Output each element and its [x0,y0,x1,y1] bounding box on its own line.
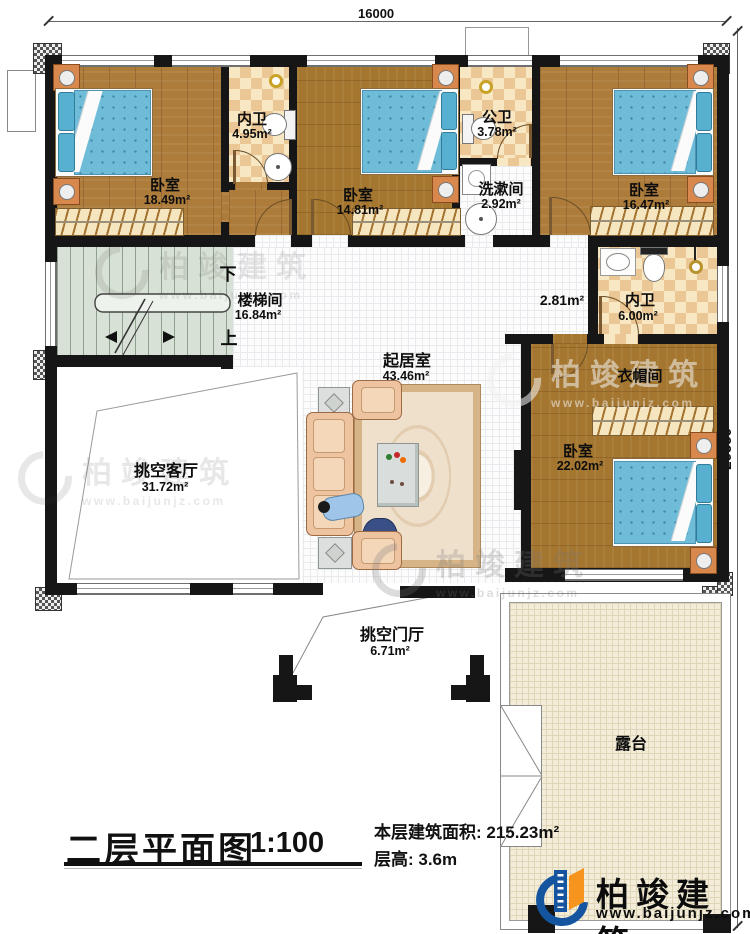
door-opening [497,158,531,166]
top-dimension-line [48,21,726,22]
person-head [318,501,330,513]
foyer-column-left [273,675,297,702]
nightstand [432,64,459,91]
drawing-scale: 1:100 [250,827,324,860]
void-living-label: 挑空客厅 [134,464,198,481]
floor-area-info: 本层建筑面积: 215.23m² [374,818,559,843]
top-dimension-label: 16000 [355,6,397,21]
right-dimension-line [737,28,738,928]
pillow [696,133,712,172]
ac-platform [7,70,36,132]
tv-unit [514,450,521,510]
pillow [696,92,712,131]
shower-head [689,260,703,274]
door-opening [550,235,588,247]
bedroom4-label: 卧室 [563,444,593,460]
door-opening [221,192,229,222]
stairs-up-label: 上 [221,330,238,348]
foyer-column-right [451,685,466,700]
window [172,55,250,67]
bath2-area: 6.00m² [618,310,658,323]
pillow [441,132,457,170]
foyer-column-left [279,655,293,677]
side-table [318,537,352,569]
door-opening [465,235,493,247]
pillow [58,92,75,131]
door-opening [604,334,638,344]
living-area: 43.46m² [383,370,430,383]
void-foyer-area: 6.71m² [370,645,410,658]
bedroom4-area: 22.02m² [557,460,604,473]
chimney-shaft [465,27,529,57]
floor-plan-canvas: 16000 20550 [0,0,750,934]
light-fixture [269,74,283,88]
washroom-label: 洗漱间 [478,182,523,198]
wall-bath2-left [588,247,598,344]
bath1-label: 内卫 [237,112,267,128]
toilet [643,254,665,282]
pillow [58,133,75,172]
nightstand [690,547,717,574]
nightstand [432,176,459,203]
nightstand [687,64,714,91]
bath1-door-leaf [233,150,236,184]
pillow [441,92,457,130]
bedroom2-label: 卧室 [343,188,373,204]
nightstand [53,178,80,205]
floor-height-info: 层高: 3.6m [374,845,457,870]
foyer-column-right [470,655,484,677]
vanity-counter [600,248,636,276]
bedroom3-door-leaf [549,197,552,235]
door-opening [553,334,587,344]
stairs-graphic [57,247,233,355]
door-opening [312,235,348,247]
foyer-column-right [466,675,490,702]
armchair [352,380,402,420]
void-living-area: 31.72m² [142,481,189,494]
window [307,55,435,67]
void-foyer-label: 挑空门厅 [360,628,424,645]
corridor-area: 2.81m² [540,293,584,308]
bedroom3-area: 16.47m² [623,199,670,212]
cloakroom-label: 衣帽间 [617,369,662,385]
stairs-down-label: 下 [220,266,237,284]
window [77,583,190,595]
bedroom2-area: 14.81m² [337,204,384,217]
sink [264,153,292,181]
wall-washblock-right [532,67,540,247]
terrace-label: 露台 [615,737,647,754]
pillow [696,504,712,543]
bath1-area: 4.95m² [232,128,272,141]
wall-bedroom4-left [521,334,531,570]
public-bath-label: 公卫 [482,110,512,126]
bedroom1-label: 卧室 [150,178,180,194]
wall-bottom-center [400,586,475,598]
bedroom3-label: 卧室 [629,183,659,199]
nightstand [687,176,714,203]
stairwell-area: 16.84m² [235,309,282,322]
brand-url: www.baijunjz.com [596,905,750,922]
public-bath-door-leaf [529,124,532,158]
title-underline [64,862,362,866]
armchair [352,531,402,570]
nightstand [690,432,717,459]
wardrobe [55,208,184,236]
washroom-area: 2.92m² [481,198,521,211]
bath2-door-leaf [599,296,602,334]
brand-logo-icon [536,864,588,928]
bath2-label: 内卫 [625,293,655,309]
door-opening [255,235,291,247]
wall-stub [221,355,233,369]
stairwell-label: 楼梯间 [237,293,282,309]
brand-name: 柏竣建筑 [596,868,750,934]
window [468,55,532,67]
pillow [696,464,712,503]
bedroom4-door-leaf [551,344,554,374]
light-fixture [479,80,493,94]
bedroom1-door-leaf [289,199,292,235]
coffee-table [377,443,419,507]
bedroom1-area: 18.49m² [144,194,191,207]
title-underline-2 [64,868,362,869]
wall-row1-bottom [45,235,729,247]
window [233,583,273,595]
bedroom2-door-leaf [311,199,314,235]
foyer-column-left [297,685,312,700]
window [717,266,729,322]
nightstand [53,64,80,91]
window [565,569,683,581]
window [45,262,57,346]
wall-stair-bottom [45,355,233,367]
public-bath-area: 3.78m² [477,126,517,139]
window [560,55,698,67]
